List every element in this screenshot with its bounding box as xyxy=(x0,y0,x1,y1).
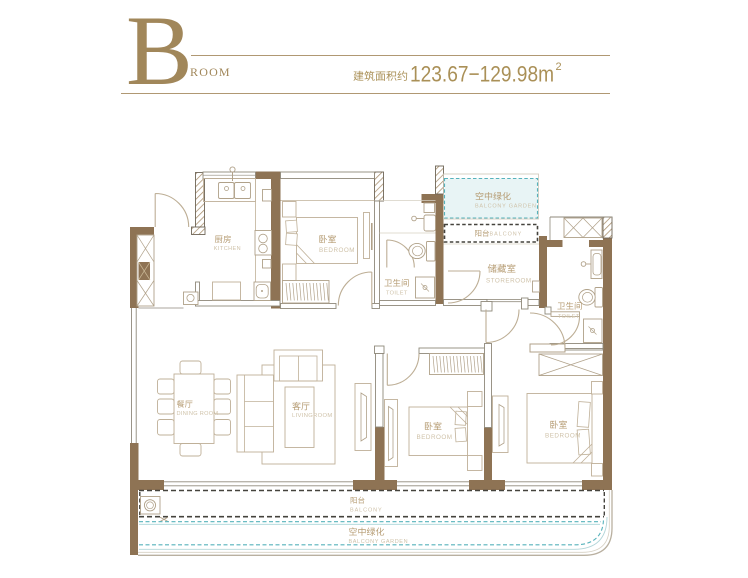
svg-text:TOILET: TOILET xyxy=(558,314,580,320)
svg-text:BEDROOM: BEDROOM xyxy=(417,434,453,441)
svg-text:BALCONY: BALCONY xyxy=(490,232,523,238)
svg-text:123.67−129.98m: 123.67−129.98m xyxy=(410,62,554,87)
svg-text:DINING ROOM: DINING ROOM xyxy=(177,411,219,417)
svg-text:ROOM: ROOM xyxy=(190,65,231,79)
svg-text:STOREROOM: STOREROOM xyxy=(486,278,532,285)
svg-text:TOILET: TOILET xyxy=(386,291,408,297)
svg-text:BALCONY: BALCONY xyxy=(350,508,383,514)
svg-text:BEDROOM: BEDROOM xyxy=(545,433,581,440)
svg-text:B: B xyxy=(126,0,193,106)
svg-text:LIVINGROOM: LIVINGROOM xyxy=(292,413,333,419)
svg-text:BALCONY GARDEN: BALCONY GARDEN xyxy=(349,539,409,545)
svg-text:BEDROOM: BEDROOM xyxy=(319,247,355,254)
svg-text:BALCONY GARDEN: BALCONY GARDEN xyxy=(475,203,537,209)
svg-text:2: 2 xyxy=(556,61,562,73)
svg-text:KITCHEN: KITCHEN xyxy=(214,246,241,252)
